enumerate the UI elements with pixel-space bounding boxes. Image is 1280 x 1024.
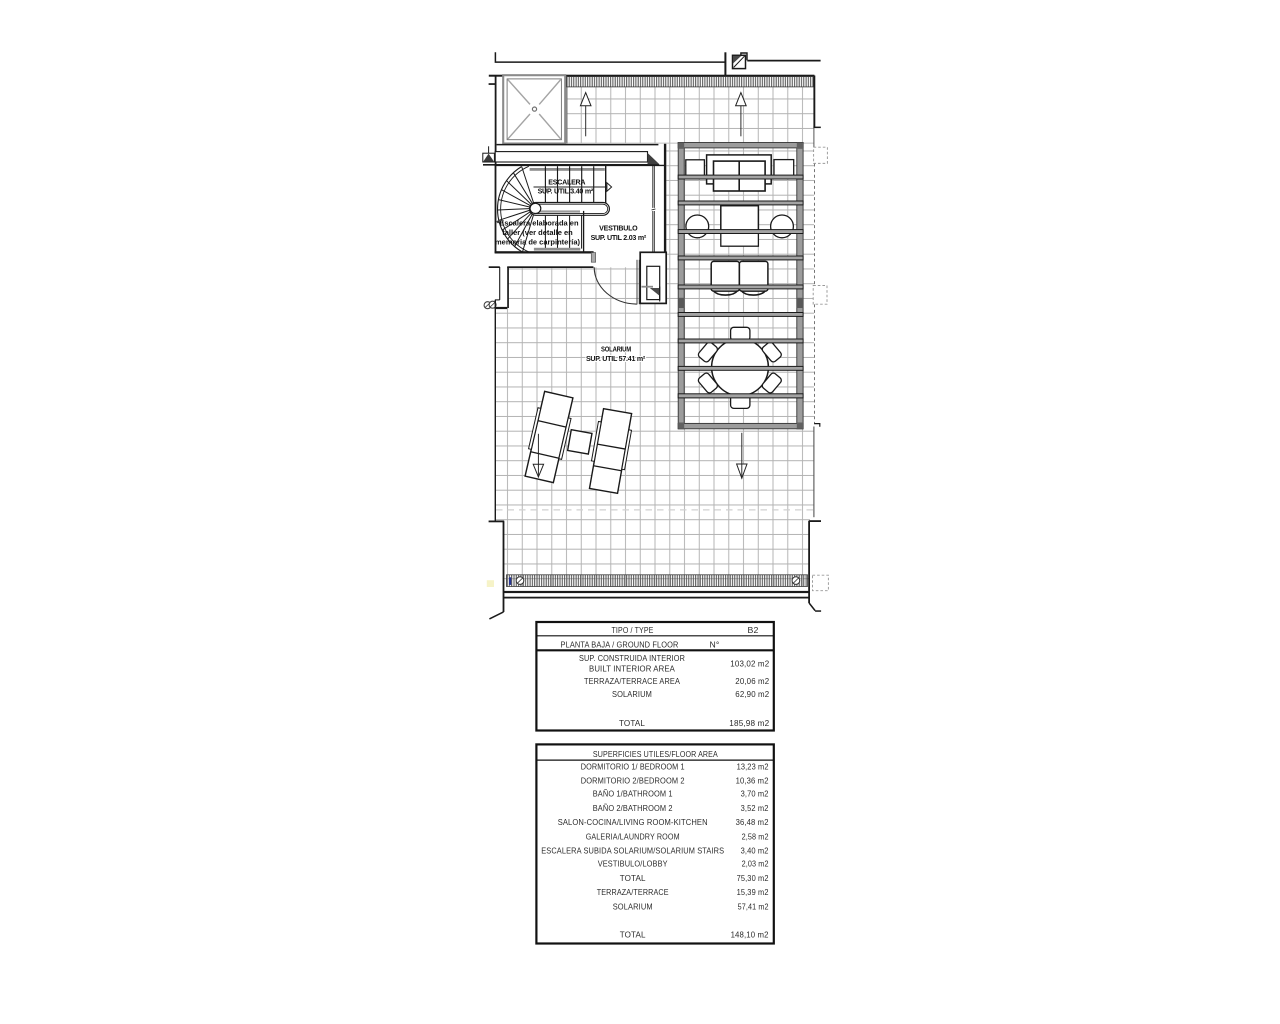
svg-text:taller (ver detalle en: taller (ver detalle en [502, 228, 573, 237]
svg-text:2,58 m2: 2,58 m2 [742, 831, 769, 841]
svg-text:BAÑO 2/BATHROOM 2: BAÑO 2/BATHROOM 2 [593, 803, 673, 813]
svg-text:SUP. CONSTRUIDA INTERIOR: SUP. CONSTRUIDA INTERIOR [579, 653, 685, 663]
svg-text:15,39 m2: 15,39 m2 [737, 887, 769, 897]
svg-text:2,03 m2: 2,03 m2 [742, 859, 769, 869]
svg-text:148,10 m2: 148,10 m2 [731, 930, 769, 940]
svg-text:62,90 m2: 62,90 m2 [735, 689, 769, 699]
svg-text:3,52 m2: 3,52 m2 [741, 803, 769, 813]
svg-text:ESCALERA SUBIDA SOLARIUM/SOLAR: ESCALERA SUBIDA SOLARIUM/SOLARIUM STAIRS [541, 846, 724, 856]
svg-text:SUP. UTIL 3.40 m²: SUP. UTIL 3.40 m² [538, 188, 594, 196]
svg-text:SUPERFICIES UTILES/FLOOR AREA: SUPERFICIES UTILES/FLOOR AREA [593, 749, 718, 759]
svg-text:SUP. UTIL 57.41 m²: SUP. UTIL 57.41 m² [586, 355, 646, 363]
svg-text:GALERIA/LAUNDRY ROOM: GALERIA/LAUNDRY ROOM [586, 831, 680, 841]
svg-text:57,41 m2: 57,41 m2 [738, 901, 769, 911]
svg-text:TERRAZA/TERRACE: TERRAZA/TERRACE [597, 887, 669, 897]
svg-text:SOLARIUM: SOLARIUM [601, 346, 631, 354]
svg-text:memoria de carpintería): memoria de carpintería) [495, 238, 581, 247]
svg-text:TOTAL: TOTAL [620, 873, 646, 883]
svg-text:75,30 m2: 75,30 m2 [737, 873, 769, 883]
svg-text:TIPO / TYPE: TIPO / TYPE [612, 625, 654, 635]
svg-text:13,23 m2: 13,23 m2 [737, 761, 769, 771]
svg-text:B2: B2 [748, 625, 759, 635]
svg-text:VESTIBULO/LOBBY: VESTIBULO/LOBBY [598, 859, 668, 869]
svg-text:PLANTA BAJA / GROUND FLOOR: PLANTA BAJA / GROUND FLOOR [561, 639, 679, 649]
svg-text:SUP. UTIL 2.03 m²: SUP. UTIL 2.03 m² [591, 234, 647, 242]
svg-text:TERRAZA/TERRACE AREA: TERRAZA/TERRACE AREA [584, 676, 680, 686]
svg-text:185,98 m2: 185,98 m2 [729, 718, 769, 728]
svg-text:103,02 m2: 103,02 m2 [730, 659, 769, 669]
svg-text:20,06 m2: 20,06 m2 [735, 676, 769, 686]
svg-text:ESCALERA: ESCALERA [548, 178, 585, 186]
svg-text:DORMITORIO 1/ BEDROOM 1: DORMITORIO 1/ BEDROOM 1 [581, 761, 685, 771]
svg-text:VESTIBULO: VESTIBULO [599, 225, 638, 233]
svg-text:3,40 m2: 3,40 m2 [741, 846, 769, 856]
svg-text:*Escalera elaborada en: *Escalera elaborada en [496, 219, 579, 228]
svg-text:SOLARIUM: SOLARIUM [612, 689, 652, 699]
svg-text:BAÑO 1/BATHROOM 1: BAÑO 1/BATHROOM 1 [593, 789, 673, 799]
svg-text:BUILT INTERIOR AREA: BUILT INTERIOR AREA [589, 664, 675, 674]
svg-text:TOTAL: TOTAL [620, 930, 646, 940]
svg-text:N°: N° [710, 639, 720, 649]
svg-text:10,36 m2: 10,36 m2 [736, 776, 769, 786]
svg-text:3,70 m2: 3,70 m2 [741, 789, 769, 799]
svg-text:SALON-COCINA/LIVING ROOM-KITCH: SALON-COCINA/LIVING ROOM-KITCHEN [558, 817, 708, 827]
svg-text:36,48 m2: 36,48 m2 [736, 817, 769, 827]
svg-text:TOTAL: TOTAL [619, 718, 645, 728]
svg-text:SOLARIUM: SOLARIUM [613, 901, 653, 911]
svg-text:DORMITORIO 2/BEDROOM 2: DORMITORIO 2/BEDROOM 2 [581, 776, 685, 786]
